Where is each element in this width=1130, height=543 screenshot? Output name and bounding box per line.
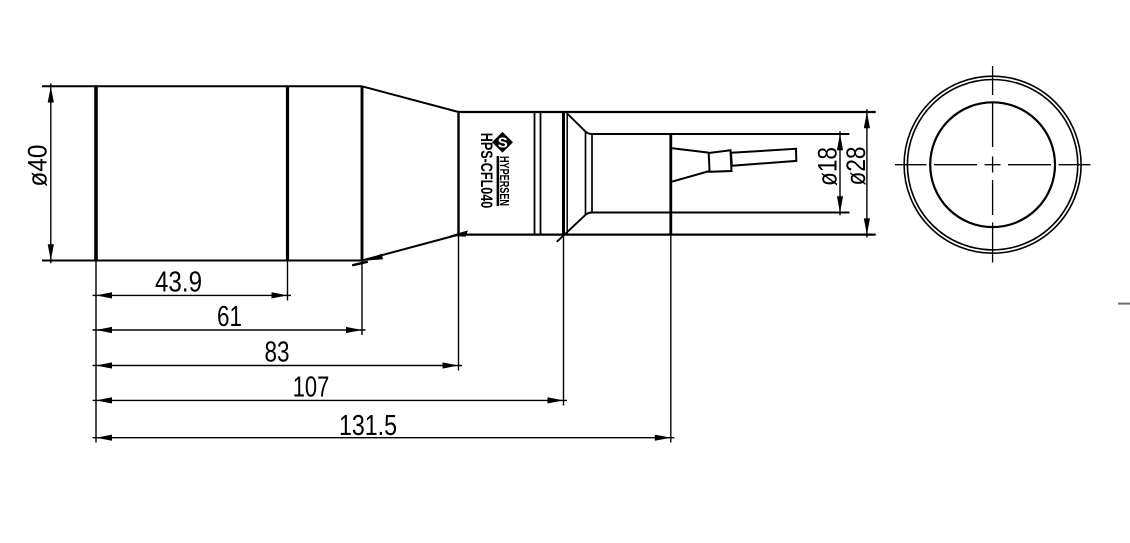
svg-text:S: S	[498, 135, 508, 152]
svg-text:ø40: ø40	[22, 145, 52, 187]
svg-text:83: 83	[265, 337, 290, 369]
svg-text:43.9: 43.9	[155, 266, 202, 298]
svg-text:ø18: ø18	[813, 147, 843, 186]
svg-text:107: 107	[293, 371, 330, 403]
svg-text:HPS-CFL040: HPS-CFL040	[477, 133, 495, 209]
svg-text:131.5: 131.5	[339, 410, 397, 442]
svg-text:61: 61	[217, 301, 242, 333]
svg-text:ø28: ø28	[841, 147, 871, 186]
